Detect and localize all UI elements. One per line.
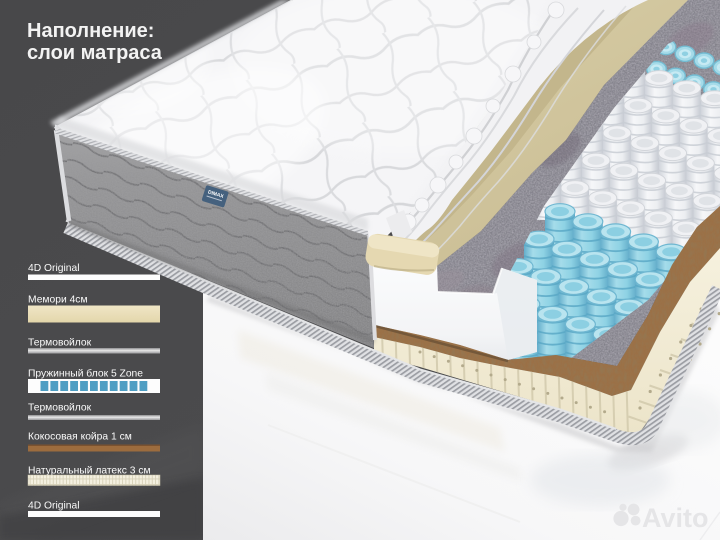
svg-text:4D Original: 4D Original (28, 263, 80, 274)
svg-text:Мемори 4см: Мемори 4см (28, 295, 88, 306)
svg-text:Кокосовая койра 1 см: Кокосовая койра 1 см (28, 432, 132, 443)
svg-text:Наполнение:: Наполнение: (27, 20, 154, 42)
svg-text:Avito: Avito (642, 503, 709, 533)
svg-text:слои матраса: слои матраса (27, 42, 163, 64)
svg-text:Термовойлок: Термовойлок (28, 338, 92, 349)
svg-text:Термовойлок: Термовойлок (28, 403, 92, 414)
svg-text:Пружинный блок 5 Zone: Пружинный блок 5 Zone (28, 368, 143, 380)
svg-text:4D Original: 4D Original (28, 501, 80, 512)
